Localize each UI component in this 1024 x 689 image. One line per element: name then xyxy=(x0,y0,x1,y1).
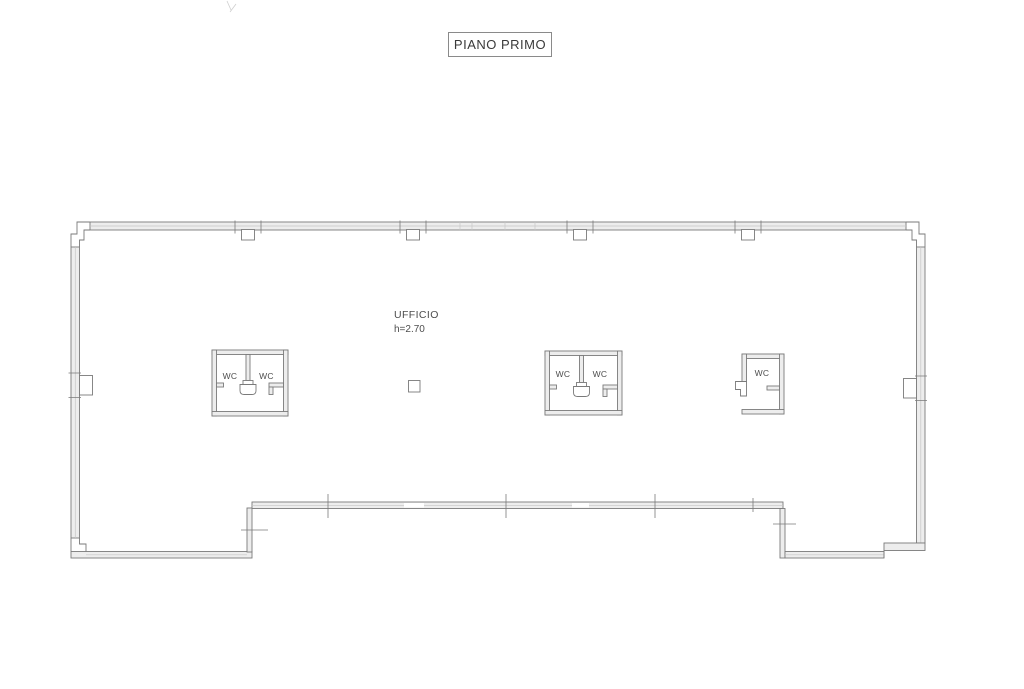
wc-label: WC xyxy=(593,369,608,379)
wc-divider-wall xyxy=(246,355,250,381)
wc-door-stub xyxy=(550,385,557,389)
top-wall xyxy=(71,221,925,248)
floor-plan-drawing: WC WC WC WC WC xyxy=(0,0,1024,689)
wc-door-stub xyxy=(767,386,780,390)
sink-icon xyxy=(240,385,256,395)
left-wall-pilaster xyxy=(80,376,93,396)
left-wall xyxy=(69,247,93,538)
sink-icon xyxy=(574,387,590,397)
bottom-left-corner xyxy=(71,538,86,552)
room-height-label: h=2.70 xyxy=(394,324,425,335)
top-left-corner xyxy=(71,222,90,247)
wc-label: WC xyxy=(556,369,571,379)
door-opening xyxy=(572,503,589,508)
wc-door-stub xyxy=(269,383,284,387)
bottom-right-raised xyxy=(884,543,925,551)
sink-icon xyxy=(736,382,747,397)
wc-block-right: WC xyxy=(736,354,785,414)
right-wall xyxy=(904,247,928,543)
wc-door-stub xyxy=(603,385,618,389)
scan-artifact xyxy=(227,1,236,12)
wc-block-left: WC WC xyxy=(212,350,288,416)
bottom-step-right xyxy=(780,509,785,559)
bottom-wall xyxy=(71,494,925,558)
column-marker xyxy=(409,381,421,393)
wc-block-middle: WC WC xyxy=(545,351,622,415)
wc-label: WC xyxy=(223,371,238,381)
room-name-label: UFFICIO xyxy=(394,309,439,321)
wc-divider-wall xyxy=(580,356,584,383)
wc-label: WC xyxy=(259,371,274,381)
wc-door-stub xyxy=(217,383,224,387)
door-opening xyxy=(404,503,424,508)
wc-label: WC xyxy=(755,368,770,378)
top-right-corner xyxy=(906,222,925,247)
office-label-group: UFFICIO h=2.70 xyxy=(394,309,439,335)
floor-plan-page: PIANO PRIMO xyxy=(0,0,1024,689)
right-wall-pilaster xyxy=(904,379,917,399)
